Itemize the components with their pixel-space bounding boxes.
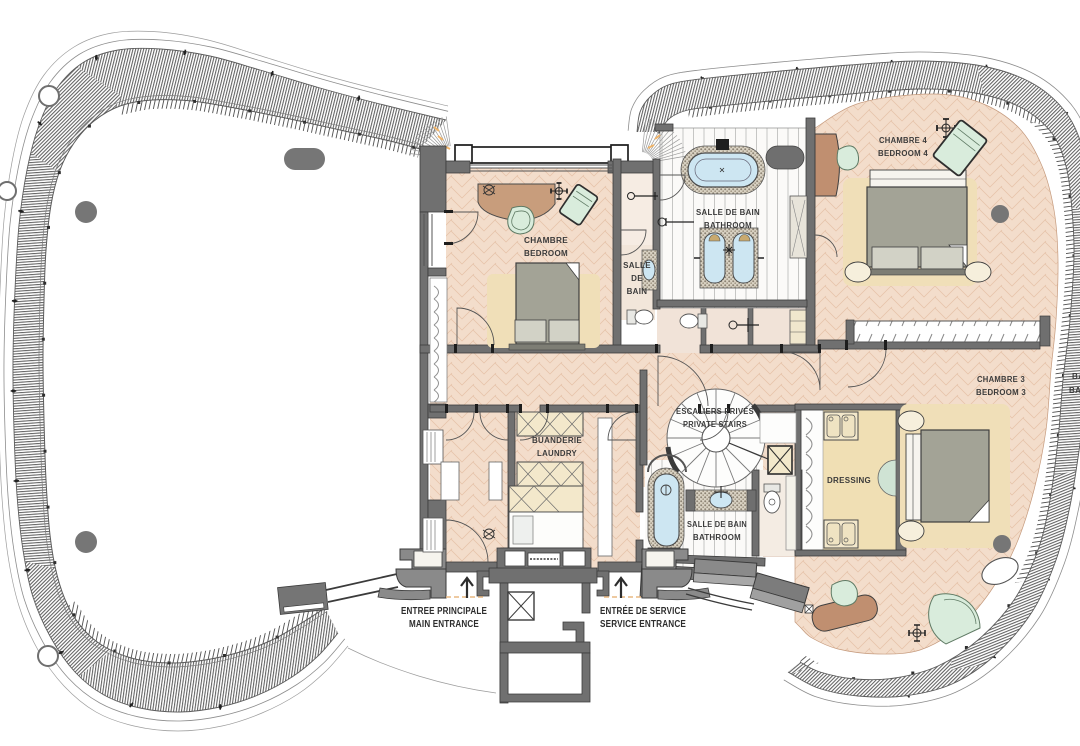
svg-text:PRIVATE STAIRS: PRIVATE STAIRS	[683, 420, 747, 429]
svg-text:DE: DE	[631, 274, 643, 283]
svg-text:MAIN ENTRANCE: MAIN ENTRANCE	[409, 619, 479, 630]
svg-text:BATHROOM: BATHROOM	[693, 533, 741, 542]
svg-text:ENTRÉE DE SERVICE: ENTRÉE DE SERVICE	[600, 604, 686, 617]
svg-text:CHAMBRE 3: CHAMBRE 3	[977, 375, 1025, 384]
svg-text:LAUNDRY: LAUNDRY	[537, 449, 577, 458]
svg-text:SALLE: SALLE	[623, 261, 651, 270]
svg-text:BATHROOM: BATHROOM	[704, 221, 752, 230]
svg-text:BALCONY: BALCONY	[1069, 386, 1080, 395]
svg-text:CHAMBRE: CHAMBRE	[524, 236, 568, 245]
svg-text:BEDROOM 4: BEDROOM 4	[878, 149, 928, 158]
svg-text:ESCALIERS PRIVÉS: ESCALIERS PRIVÉS	[676, 407, 754, 416]
svg-text:BEDROOM: BEDROOM	[524, 249, 568, 258]
svg-text:BEDROOM 3: BEDROOM 3	[976, 388, 1026, 397]
svg-text:CHAMBRE 4: CHAMBRE 4	[879, 136, 927, 145]
svg-text:BAIN: BAIN	[627, 287, 648, 296]
svg-text:BUANDERIE: BUANDERIE	[532, 436, 582, 445]
svg-text:SALLE DE BAIN: SALLE DE BAIN	[696, 208, 760, 217]
svg-text:SERVICE ENTRANCE: SERVICE ENTRANCE	[600, 619, 686, 630]
svg-text:BALCON: BALCON	[1072, 372, 1080, 381]
svg-text:DRESSING: DRESSING	[827, 476, 871, 485]
svg-text:ENTREE PRINCIPALE: ENTREE PRINCIPALE	[401, 606, 487, 617]
svg-text:SALLE DE BAIN: SALLE DE BAIN	[687, 520, 747, 529]
